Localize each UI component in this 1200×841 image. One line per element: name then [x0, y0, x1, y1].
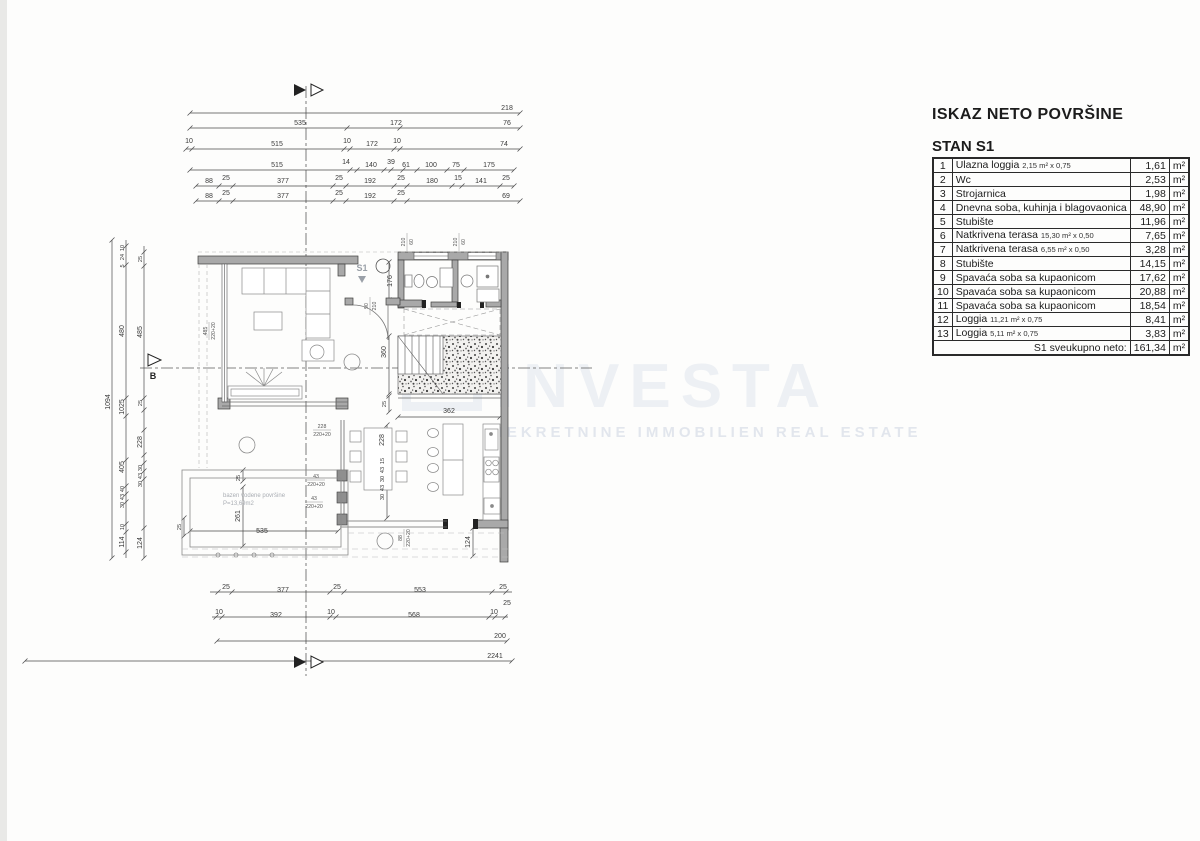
dimension-label: 25 — [499, 584, 507, 591]
room-note: 15,30 m² x 0,50 — [1041, 231, 1094, 240]
opening-size-label: 228220+20 — [313, 424, 331, 438]
dimension-label: 43 — [120, 494, 126, 500]
dimension-label: 25 — [222, 190, 230, 197]
kitchen-island — [443, 424, 463, 495]
entrance-arrow-icon — [358, 276, 366, 283]
table-row: 1Ulazna loggia 2,15 m² x 0,751,61m² — [933, 158, 1189, 173]
entrance-door — [353, 305, 388, 340]
opening-size-label: 43220+20 — [305, 496, 323, 510]
table-row: 4Dnevna soba, kuhinja i blagovaonica 48,… — [933, 201, 1189, 215]
dimension-label: 25 — [138, 400, 144, 406]
dimension-label: 176 — [387, 275, 394, 287]
room-area-value: 20,88 — [1130, 285, 1169, 299]
dimension-label: 43 — [138, 473, 144, 479]
room-area-unit: m² — [1169, 271, 1189, 285]
dimension-label: 192 — [364, 193, 376, 200]
walls — [198, 252, 508, 562]
room-label: Wc — [952, 173, 1130, 187]
total-value: 161,34 — [1130, 341, 1169, 356]
dimension-label: 228 — [379, 434, 386, 446]
entrance-symbol — [376, 259, 390, 273]
room-note: 5,11 m² x 0,75 — [990, 329, 1038, 338]
dimension-label: 535 — [294, 120, 306, 127]
dimension-label: 172 — [366, 141, 378, 148]
dimension-label: 40 — [120, 486, 126, 492]
dimension-label: 10 — [343, 138, 351, 145]
dimension-label: 88 — [205, 193, 213, 200]
area-statement: ISKAZ NETO POVRŠINE STAN S1 1Ulazna logg… — [932, 106, 1168, 356]
dimension-label: 30 — [380, 494, 386, 500]
dimension-label: 218 — [501, 105, 513, 112]
room-area-value: 3,28 — [1130, 243, 1169, 257]
dimension-label: 15 — [380, 458, 386, 464]
room-label: Natkrivena terasa 6,55 m² x 0,50 — [952, 243, 1130, 257]
terrace-edges — [182, 533, 508, 557]
stairs — [398, 336, 501, 394]
dimension-label: 172 — [390, 120, 402, 127]
dimension-label: 124 — [465, 536, 472, 548]
svg-text:210: 210 — [372, 302, 378, 311]
dimension-label: 74 — [500, 141, 508, 148]
room-area-value: 48,90 — [1130, 201, 1169, 215]
dimension-label: 24 — [120, 254, 126, 260]
dimension-label: 362 — [443, 408, 455, 415]
room-label: Stubište — [952, 215, 1130, 229]
room-area-unit: m² — [1169, 158, 1189, 173]
kitchen-sink — [485, 429, 498, 450]
room-label: Loggia 11,21 m² x 0,75 — [952, 313, 1130, 327]
shower-tray — [477, 289, 499, 302]
pool-basin — [190, 478, 341, 547]
table-row: 2Wc 2,53m² — [933, 173, 1189, 187]
room-area-value: 3,83 — [1130, 327, 1169, 341]
svg-text:90: 90 — [364, 303, 370, 309]
table-title: ISKAZ NETO POVRŠINE — [932, 106, 1168, 124]
svg-text:228: 228 — [318, 424, 327, 430]
room-area-value: 11,96 — [1130, 215, 1169, 229]
drawing-page: INVESTA NEKRETNINE IMMOBILIEN REAL ESTAT… — [0, 0, 1200, 841]
dimension-label: 39 — [387, 159, 395, 166]
svg-text:220+20: 220+20 — [307, 482, 325, 488]
table-row: 10Spavaća soba sa kupaonicom 20,88m² — [933, 285, 1189, 299]
bar-stool — [428, 448, 439, 457]
total-label: S1 sveukupno neto: — [933, 341, 1130, 356]
dimension-label: 25 — [335, 175, 343, 182]
section-a-top-filled-arrow-icon — [294, 84, 306, 96]
bar-stool — [428, 464, 439, 473]
room-label: Spavaća soba sa kupaonicom — [952, 271, 1130, 285]
section-markers: B — [148, 84, 323, 668]
room-label: Natkrivena terasa 15,30 m² x 0,50 — [952, 229, 1130, 243]
dimension-label: 25 — [335, 190, 343, 197]
dimension-label: 25 — [503, 600, 511, 607]
row-number: 7 — [933, 243, 952, 257]
room-label: Strojarnica — [952, 187, 1130, 201]
dimension-label: 405 — [119, 461, 126, 473]
dining-chair — [350, 471, 361, 482]
opening-size-label: 43220+20 — [307, 474, 325, 488]
room-area-unit: m² — [1169, 313, 1189, 327]
sink — [427, 277, 438, 288]
total-unit: m² — [1169, 341, 1189, 356]
dimension-label: 10 — [327, 609, 335, 616]
sofa — [242, 268, 308, 294]
table-row: 12Loggia 11,21 m² x 0,758,41m² — [933, 313, 1189, 327]
dimension-label: 10 — [120, 524, 126, 530]
dimension-label: 30 — [138, 465, 144, 471]
room-label: Spavaća soba sa kupaonicom — [952, 285, 1130, 299]
table-row: 5Stubište 11,96m² — [933, 215, 1189, 229]
room-area-unit: m² — [1169, 229, 1189, 243]
dimension-label: 1094 — [105, 394, 112, 410]
svg-text:88: 88 — [398, 535, 404, 541]
table-total-row: S1 sveukupno neto: 161,34 m² — [933, 341, 1189, 356]
dimension-label: 1025 — [119, 399, 126, 415]
dimension-label: 30 — [120, 502, 126, 508]
centerlines — [140, 86, 592, 676]
svg-text:220+20: 220+20 — [211, 322, 217, 340]
dimension-label: 568 — [408, 612, 420, 619]
dimension-label: 76 — [503, 120, 511, 127]
dimension-label: 192 — [364, 178, 376, 185]
svg-text:485: 485 — [203, 327, 209, 336]
section-b-arrow-icon — [148, 354, 161, 366]
room-area-unit: m² — [1169, 327, 1189, 341]
row-number: 9 — [933, 271, 952, 285]
vanity — [440, 268, 453, 287]
row-number: 3 — [933, 187, 952, 201]
section-a-top-outline-arrow-icon — [311, 84, 323, 96]
sink-2 — [461, 275, 473, 287]
dimension-label: 480 — [119, 325, 126, 337]
section-b-label: B — [150, 371, 157, 381]
dimension-label: 25 — [222, 175, 230, 182]
row-number: 8 — [933, 257, 952, 271]
opening-size-label: 90210 — [364, 297, 378, 315]
dimension-label: 10 — [120, 245, 126, 251]
svg-text:210: 210 — [401, 238, 407, 247]
dimension-label: 377 — [277, 178, 289, 185]
dimension-label: 200 — [494, 633, 506, 640]
pool-label-text: bazen vodene površine — [223, 493, 286, 499]
dimension-label: 140 — [365, 162, 377, 169]
dimension-label: 553 — [414, 587, 426, 594]
room-area-unit: m² — [1169, 299, 1189, 313]
dimension-label: 124 — [137, 537, 144, 549]
dimension-label: 535 — [256, 528, 268, 535]
table-row: 3Strojarnica 1,98m² — [933, 187, 1189, 201]
bar-stool — [428, 429, 439, 438]
room-area-value: 7,65 — [1130, 229, 1169, 243]
dimension-label: 377 — [277, 193, 289, 200]
net-area-table: 1Ulazna loggia 2,15 m² x 0,751,61m²2Wc 2… — [932, 157, 1190, 356]
row-number: 4 — [933, 201, 952, 215]
toilet-tank — [405, 275, 412, 287]
entrance-marker: S1 — [356, 259, 390, 283]
dimension-label: 141 — [475, 178, 487, 185]
dimension-label: 30 — [380, 476, 386, 482]
room-area-value: 1,61 — [1130, 158, 1169, 173]
table-row: 7Natkrivena terasa 6,55 m² x 0,503,28m² — [933, 243, 1189, 257]
row-number: 1 — [933, 158, 952, 173]
svg-text:220+20: 220+20 — [406, 529, 412, 547]
dimension-label: 2241 — [487, 653, 503, 660]
pool-area-text: P=13,69m2 — [223, 501, 255, 507]
dining-chair — [350, 431, 361, 442]
dining-table — [364, 428, 392, 490]
dimension-label: 25 — [236, 475, 242, 481]
pool-terrace — [182, 354, 393, 557]
dimension-label: 360 — [381, 346, 388, 358]
row-number: 11 — [933, 299, 952, 313]
opening-size-label: 485220+20 — [203, 322, 217, 340]
svg-text:60: 60 — [461, 239, 467, 245]
dining-chair — [396, 431, 407, 442]
svg-text:210: 210 — [453, 238, 459, 247]
dimension-label: 10 — [215, 609, 223, 616]
terrace-column — [239, 437, 255, 453]
opening-size-label: 21060 — [453, 233, 467, 251]
table-row: 6Natkrivena terasa 15,30 m² x 0,507,65m² — [933, 229, 1189, 243]
room-area-unit: m² — [1169, 201, 1189, 215]
dimension-label: 10 — [393, 138, 401, 145]
toilet-bowl — [414, 275, 424, 288]
room-area-unit: m² — [1169, 187, 1189, 201]
room-area-unit: m² — [1169, 257, 1189, 271]
row-number: 5 — [933, 215, 952, 229]
table-subtitle: STAN S1 — [932, 138, 1168, 155]
dimension-label: 30 — [138, 481, 144, 487]
row-number: 12 — [933, 313, 952, 327]
room-area-unit: m² — [1169, 173, 1189, 187]
dimension-label: 43 — [380, 485, 386, 491]
dimension-label: 10 — [185, 138, 193, 145]
room-label: Stubište — [952, 257, 1130, 271]
svg-text:220+20: 220+20 — [313, 432, 331, 438]
table-row: 13Loggia 5,11 m² x 0,753,83m² — [933, 327, 1189, 341]
dimension-label: 515 — [271, 141, 283, 148]
void-area — [404, 309, 500, 335]
dining-chair — [350, 451, 361, 462]
dimension-label: 175 — [483, 162, 495, 169]
opening-size-label: 88220+20 — [398, 529, 412, 547]
svg-text:43: 43 — [313, 474, 319, 480]
dining-chair — [396, 451, 407, 462]
pool-label: bazen vodene površine P=13,69m2 — [223, 493, 286, 507]
svg-text:220+20: 220+20 — [305, 504, 323, 510]
room-label: Dnevna soba, kuhinja i blagovaonica — [952, 201, 1130, 215]
dimension-label: 25 — [333, 584, 341, 591]
dimension-label: 88 — [205, 178, 213, 185]
table-row: 9Spavaća soba sa kupaonicom 17,62m² — [933, 271, 1189, 285]
room-area-unit: m² — [1169, 243, 1189, 257]
dimension-label: 25 — [382, 401, 388, 407]
dimension-label: 25 — [502, 175, 510, 182]
dimension-label: 10 — [490, 609, 498, 616]
room-label: Ulazna loggia 2,15 m² x 0,75 — [952, 158, 1130, 173]
section-a-bottom-filled-arrow-icon — [294, 656, 306, 668]
dimension-label: 43 — [380, 467, 386, 473]
terrace-column — [377, 533, 393, 549]
room-area-unit: m² — [1169, 285, 1189, 299]
room-area-value: 18,54 — [1130, 299, 1169, 313]
unit-label: S1 — [356, 263, 367, 273]
dimension-label: 14 — [342, 159, 350, 166]
section-a-bottom-outline-arrow-icon — [311, 656, 323, 668]
svg-text:60: 60 — [409, 239, 415, 245]
living-room-furniture — [228, 268, 334, 399]
dimension-label: 515 — [271, 162, 283, 169]
room-note: 11,21 m² x 0,75 — [990, 315, 1042, 324]
dimension-label: 61 — [402, 162, 410, 169]
dimension-label: 25 — [177, 524, 183, 530]
bar-stool — [428, 483, 439, 492]
dimension-label: 69 — [502, 193, 510, 200]
row-number: 10 — [933, 285, 952, 299]
dimension-label: 228 — [137, 436, 144, 448]
dimension-label: 180 — [426, 178, 438, 185]
row-number: 6 — [933, 229, 952, 243]
room-area-unit: m² — [1169, 215, 1189, 229]
table-row: 8Stubište 14,15m² — [933, 257, 1189, 271]
dimension-label: 485 — [137, 326, 144, 338]
table-row: 11Spavaća soba sa kupaonicom 18,54m² — [933, 299, 1189, 313]
room-area-value: 14,15 — [1130, 257, 1169, 271]
sofa-chaise — [306, 268, 330, 338]
dimension-label: 100 — [425, 162, 437, 169]
room-note: 6,55 m² x 0,50 — [1041, 245, 1090, 254]
room-area-value: 2,53 — [1130, 173, 1169, 187]
dimension-label: 25 — [397, 190, 405, 197]
dimension-label: 25 — [397, 175, 405, 182]
room-label: Spavaća soba sa kupaonicom — [952, 299, 1130, 313]
room-note: 2,15 m² x 0,75 — [1022, 161, 1071, 170]
room-label: Loggia 5,11 m² x 0,75 — [952, 327, 1130, 341]
room-area-value: 1,98 — [1130, 187, 1169, 201]
dining-chair — [396, 471, 407, 482]
dimension-label: 377 — [277, 587, 289, 594]
dimension-label: 15 — [454, 175, 462, 182]
dimension-label: 75 — [452, 162, 460, 169]
opening-size-label: 21060 — [401, 233, 415, 251]
row-number: 2 — [933, 173, 952, 187]
dimension-label: 114 — [119, 536, 126, 547]
dimension-label: 261 — [235, 510, 242, 522]
dimension-label: 392 — [270, 612, 282, 619]
room-area-value: 8,41 — [1130, 313, 1169, 327]
svg-text:43: 43 — [311, 496, 317, 502]
coffee-table — [254, 312, 282, 330]
room-area-value: 17,62 — [1130, 271, 1169, 285]
kitchen-furniture — [350, 424, 500, 520]
row-number: 13 — [933, 327, 952, 341]
dimension-label: 5 — [120, 264, 126, 267]
chair — [310, 345, 324, 359]
dimension-label: 25 — [138, 256, 144, 262]
dimension-label: 25 — [222, 584, 230, 591]
